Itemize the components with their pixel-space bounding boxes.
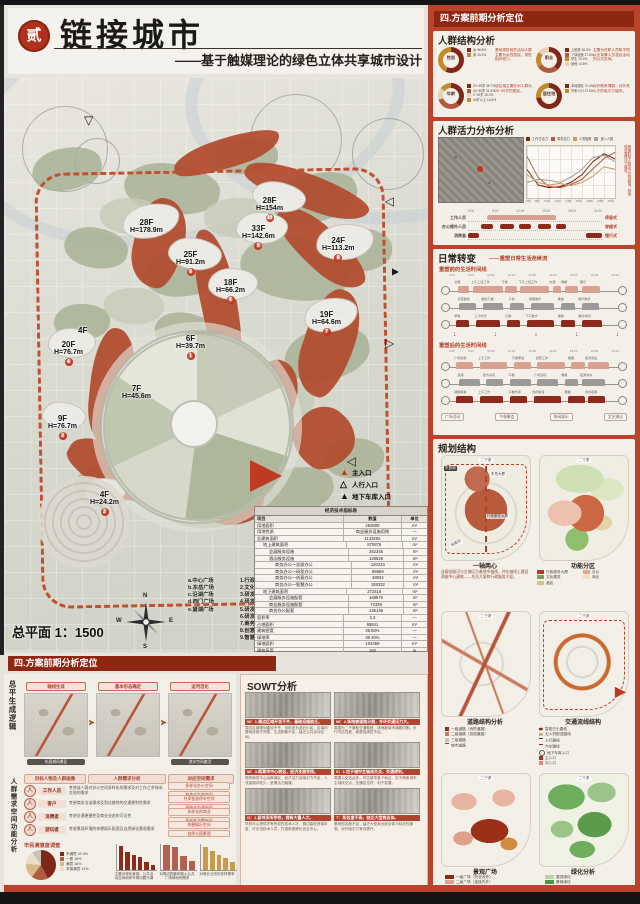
swot-item-body: 周边区域规划建设不齐，目前多为老旧小区，区域内基础设施不完善，生活配套不足，缺乏… bbox=[245, 726, 331, 739]
swot-item-body: 基地知名度不足，缺乏大型商业综合体与标志性景观，对外吸引力有待提升。 bbox=[334, 822, 420, 831]
bar bbox=[138, 857, 142, 870]
legend-swatch-icon bbox=[537, 581, 544, 585]
road-structure-diagram: 二干渠 bbox=[441, 611, 531, 717]
genesis-step-sublabel: 东昌湖风景区 bbox=[27, 759, 85, 765]
demand-persona-label: 消费者 bbox=[38, 813, 66, 821]
activity-segment bbox=[534, 396, 561, 403]
lake-label: 东昌湖 bbox=[444, 466, 457, 471]
donut-legend: 20~39岁 38.7%40~59岁 31.6%0~19岁 15.2%60岁以上… bbox=[467, 84, 493, 102]
swot-item-tag: W：2.场地被道路分割，外环交通压力大。 bbox=[334, 719, 420, 725]
donut-note: 该区域主要针对人群为20~55岁的居民。 bbox=[495, 84, 533, 93]
transform-arrows: ↓↓↓↓↓ bbox=[453, 331, 619, 338]
poster-header: 贰 链接城市 ——基于触媒理论的绿色立体共享城市设计 bbox=[8, 8, 424, 74]
demand-header: 人群需求分析 bbox=[88, 774, 166, 784]
road-line-icon bbox=[445, 732, 449, 736]
genesis-step-map bbox=[96, 693, 160, 757]
entrance-legend-item: 主入口 bbox=[340, 466, 426, 478]
compass-s: S bbox=[143, 644, 147, 650]
entrance-triangle-icon: △ bbox=[84, 116, 93, 128]
vitality-line-chart bbox=[526, 145, 616, 199]
compass-star-icon bbox=[124, 600, 168, 644]
building-number-badge: 1 bbox=[187, 352, 195, 360]
activity-segment bbox=[520, 286, 549, 293]
activity-segment bbox=[480, 362, 507, 369]
diagram-caption: 交通流线结构 bbox=[539, 717, 627, 726]
bottom-section-band: 四.方案前期分析定位 bbox=[8, 656, 276, 671]
table-row: 绿地率 39.30% — bbox=[255, 635, 427, 642]
legend-swatch-icon bbox=[565, 84, 569, 88]
genesis-steps: 轴线生成 东昌湖风景区 基本形态确定 运河活化 滨水空间激活 ➤ ➤ bbox=[24, 678, 236, 774]
donut-label: 性别 bbox=[438, 55, 464, 61]
legend-swatch-icon bbox=[583, 570, 590, 574]
plaza-name-item: e.望湖广场 bbox=[188, 607, 236, 614]
bar bbox=[210, 851, 215, 870]
site-photo bbox=[245, 788, 331, 814]
building-height-label: 6FH=39.7m1 bbox=[176, 334, 205, 360]
line-chart-svg bbox=[527, 146, 615, 198]
bottom-left-analysis-area: 总平生成逻辑 轴线生成 东昌湖风景区 基本形态确定 运河活化 滨水空间激活 ➤ … bbox=[4, 674, 236, 884]
activity-segment bbox=[565, 286, 579, 293]
zoning-legend: 行政服务大厦办公文化展览商业酒店 bbox=[537, 570, 629, 586]
road-line-icon bbox=[445, 743, 449, 748]
building-height-label: 24FH=113.2m8 bbox=[322, 236, 355, 262]
activity-segment bbox=[588, 396, 605, 403]
timeline-strip: 广场晨练上午工作午餐聚会创意工作晚餐夜间演出 bbox=[441, 355, 627, 371]
entrance-triangle-icon bbox=[340, 467, 352, 477]
swot-item: T：知名度不高，缺乏大型商业体。 基地知名度不足，缺乏大型商业综合体与标志性景观… bbox=[334, 788, 420, 831]
building-number-badge: 9 bbox=[254, 242, 262, 250]
person-icon bbox=[24, 824, 36, 836]
pie-legend: 不满意 42.3%一般 18%满意 16%非常满意 14% bbox=[60, 852, 112, 872]
traffic-dashed-boundary bbox=[543, 620, 625, 710]
activity-segment bbox=[561, 320, 575, 327]
activity-segment bbox=[459, 379, 479, 386]
legend-swatch-icon bbox=[445, 880, 454, 884]
activity-segment bbox=[568, 396, 585, 403]
donut-label: 居住地 bbox=[536, 91, 562, 97]
table-row: 地上建筑面积 870876 m² bbox=[255, 542, 427, 549]
compass-e: E bbox=[169, 618, 173, 624]
table-row: 绿地面积 104369 m² bbox=[255, 641, 427, 648]
bar-caption: 对商业业态的多样需求 bbox=[198, 872, 236, 876]
arrow-right-icon: ➤ bbox=[88, 718, 95, 727]
bar-caption: 对周边配套和核心公共广场绿地有需求 bbox=[158, 872, 196, 880]
right-analysis-panel: 四.方案前期分析定位 人群结构分析 性别 女 56.9%男 43.1% 基地现阶… bbox=[428, 5, 640, 892]
plaza-structure-diagram: 二干渠 bbox=[441, 773, 531, 867]
entrance-legend: 主入口人行入口地下车库入口 bbox=[340, 466, 426, 502]
river-label: 二干渠 bbox=[577, 458, 592, 463]
site-photo bbox=[334, 788, 420, 814]
section-number-badge: 贰 bbox=[18, 20, 50, 52]
traffic-flow-diagram: 二干渠 bbox=[539, 611, 629, 717]
vitality-card: 人群活力分布分析 工作日活力周末活力人流指数进入人数 6时8时10时12时14时… bbox=[433, 121, 635, 245]
card-subtitle: ——重塑日常生活连续流 bbox=[489, 254, 547, 262]
swot-item-body: 周围公交站点多，可达城市各个地点，位于两条城市主轴线交点，交通区位好，利于发展。 bbox=[334, 776, 420, 785]
time-ticks: 6:008:0010:0012:0014:0016:0018:0020:0022… bbox=[449, 349, 619, 353]
activity-segment bbox=[514, 362, 531, 369]
activity-segment bbox=[480, 396, 504, 403]
title-rule bbox=[54, 48, 422, 49]
table-row: 会展服务设施配套 168576 m² bbox=[255, 595, 427, 602]
demand-persona-label: 游玩者 bbox=[38, 826, 66, 834]
donut-legend: 上班族 38.2%个体经营 27.6%学生 19.4%其他 14.8% bbox=[565, 48, 591, 66]
swot-item-tag: T：知名度不高，缺乏大型商业体。 bbox=[334, 815, 420, 821]
activity-segment bbox=[588, 362, 608, 369]
satellite-map bbox=[438, 137, 524, 203]
table-row: 会展服务设施 262345 m² bbox=[255, 549, 427, 556]
swot-item-tag: O：1.紧邻多所学校，拥有大量人才。 bbox=[245, 815, 331, 821]
entrance-triangle-icon: △ bbox=[383, 197, 395, 206]
timeline-endpoint bbox=[618, 286, 627, 295]
activity-segment bbox=[476, 320, 500, 327]
demand-rows: 工作人员 考虑该人群对办公空间多样化的需求及对工作之余休闲交流的需求 多样化办公… bbox=[24, 784, 230, 836]
timeline-bar bbox=[519, 224, 531, 229]
genesis-step-tag: 基本形态确定 bbox=[98, 682, 158, 691]
table-row: 地下建筑面积 272416 m² bbox=[255, 589, 427, 596]
legend-swatch-icon bbox=[537, 575, 544, 579]
genesis-step-sublabel: 滨水空间激活 bbox=[171, 759, 229, 765]
swot-item-tag: S：1.位于城市主轴线交点，交通便利。 bbox=[334, 769, 420, 775]
table-row: 商务办公—创意办公 48834 m² bbox=[255, 575, 427, 582]
legend-swatch-icon bbox=[60, 857, 64, 861]
table-row: 酒店服务设施 128526 m² bbox=[255, 556, 427, 563]
swot-item-tag: W：3.距离市中心较远，经济发展受限。 bbox=[245, 769, 331, 775]
legend-swatch-icon bbox=[467, 53, 471, 57]
donut-note: 对外联系薄弱，对外来人才的吸引力缺失。 bbox=[593, 84, 631, 93]
building-height-label: 28FH=178.9m bbox=[130, 218, 163, 235]
legend-swatch-icon bbox=[467, 48, 471, 52]
legend-swatch-icon bbox=[545, 875, 554, 879]
activity-segment bbox=[582, 320, 602, 327]
satisfaction-pie-chart bbox=[26, 850, 56, 880]
traffic-symbol-icon bbox=[539, 738, 543, 743]
donut-cell-occupation: 职业 上班族 38.2%个体经营 27.6%学生 19.4%其他 14.8% 主… bbox=[536, 45, 632, 78]
timeline-row-workers: 工作人员 停留式 bbox=[438, 213, 630, 222]
daily-transformation-card: 日常转变 ——重塑日常生活连续流 重塑前的生活时间线 6:008:0010:00… bbox=[433, 249, 635, 435]
demand-header: 目标人物及人群画像 bbox=[24, 774, 86, 784]
bar bbox=[172, 847, 179, 870]
tower-label: 东岳大厦 bbox=[490, 472, 506, 477]
table-row: 商务办公—研发办公 96869 m² bbox=[255, 569, 427, 576]
building-height-label: 7FH=45.6m bbox=[122, 384, 151, 401]
donut-note: 主要为在职人员和不同从业背景人员混合活动的公共空间。 bbox=[593, 48, 631, 62]
table-row: 建筑密度 25.80% — bbox=[255, 628, 427, 635]
building-number-badge: 8 bbox=[334, 254, 342, 262]
river-label: 二干渠 bbox=[479, 776, 494, 781]
activity-segment bbox=[507, 320, 521, 327]
central-plaza-core bbox=[170, 400, 218, 448]
timeline-bar bbox=[487, 215, 557, 220]
bar bbox=[163, 845, 170, 870]
timeline-strip: 交通上午上班工作午餐下午上班工作交通晚餐娱乐 bbox=[441, 279, 627, 295]
genesis-step: 运河活化 滨水空间激活 bbox=[168, 682, 232, 768]
building-height-label: 19FH=64.6m7 bbox=[312, 310, 341, 336]
planning-structure-card: 规划结构 二干渠 东昌湖 东岳大厦 行政服务大厦 徒骇河 二干渠 一轴两心 功能… bbox=[433, 439, 635, 887]
main-entrance-arrow bbox=[615, 687, 626, 698]
legend-swatch-icon bbox=[565, 48, 569, 52]
swot-item: W：2.场地被道路分割，外环交通压力大。 周围为二干渠和交通枢纽，场地被城市道路… bbox=[334, 692, 420, 739]
activity-segment bbox=[483, 303, 503, 310]
building-height-label: 9FH=76.7m3 bbox=[48, 414, 77, 440]
table-row: 商务办公—总部办公 120233 m² bbox=[255, 562, 427, 569]
building-height-label: 20FH=76.7m4 bbox=[54, 340, 83, 366]
table-row: 用地性质 商业服务设施用地 — bbox=[255, 529, 427, 536]
demand-persona-label: 工作人员 bbox=[38, 787, 66, 795]
activity-segment bbox=[582, 379, 606, 386]
swot-item: W：3.距离市中心较远，经济发展受限。 现有商务中心远离城区，经济活力及吸引力不… bbox=[245, 742, 331, 785]
demand-need-text: 考虑交通便捷性及商业业态的可达性 bbox=[69, 814, 165, 819]
swot-items: W：1.周边区域开发不齐，基础设施缺乏。 周边区域规划建设不齐，目前多为老旧小区… bbox=[245, 692, 423, 831]
bar bbox=[230, 862, 235, 870]
arrow-right-icon: ➤ bbox=[160, 718, 167, 727]
genesis-step: 基本形态确定 bbox=[96, 682, 160, 768]
admin-tower-label: 行政服务大厦 bbox=[486, 514, 509, 519]
pie-legend-item: 非常满意 14% bbox=[60, 867, 112, 872]
activity-segment bbox=[531, 303, 555, 310]
timeline-row-consumers: 消费者 慢行式 bbox=[438, 231, 630, 240]
building-height-label: 18FH=66.2m6 bbox=[216, 278, 245, 304]
poster-board: 贰 链接城市 ——基于触媒理论的绿色立体共享城市设计 △ △ △ △ ▲ 28F… bbox=[0, 0, 640, 904]
table-row: 占地面积 65841 m² bbox=[255, 622, 427, 629]
bottom-frame-bar bbox=[0, 892, 640, 904]
person-icon bbox=[24, 798, 36, 810]
genesis-step-tag: 轴线生成 bbox=[26, 682, 86, 691]
demand-vertical-title: 人群需求空间功能分析 bbox=[7, 778, 17, 853]
diagram-caption: 道路结构分析 bbox=[441, 717, 529, 726]
demand-persona-label: 客户 bbox=[38, 800, 66, 808]
swot-item-body: 现有商务中心远离城区，经济活力及吸引力不足，人流量相对较少，亟需活力触媒。 bbox=[245, 776, 331, 785]
legend-swatch-icon bbox=[565, 53, 569, 57]
timeline-strip: 早餐上午时光午餐下午散步晚餐晚间休闲 bbox=[441, 313, 627, 329]
activity-segment bbox=[456, 362, 473, 369]
legend-swatch-icon bbox=[545, 880, 554, 884]
building-number-badge: 4 bbox=[65, 358, 73, 366]
activity-segment bbox=[571, 362, 585, 369]
site-photo bbox=[245, 742, 331, 768]
table-title: 经济技术指标表 bbox=[255, 507, 427, 516]
legend-swatch-icon bbox=[60, 862, 64, 866]
person-icon bbox=[24, 785, 36, 797]
swot-panel: SOWT分析 W：1.周边区域开发不齐，基础设施缺乏。 周边区域规划建设不齐，目… bbox=[240, 674, 428, 886]
entrance-triangle-icon bbox=[340, 491, 352, 501]
demand-row: 游玩者 考虑景观环境的休憩娱乐氛围及自然绿化景观需求 休憩娱乐空间自然公园景观 bbox=[24, 823, 230, 836]
river-label: 二干渠 bbox=[479, 614, 494, 619]
donut-label: 年龄 bbox=[438, 91, 464, 97]
road-line-icon bbox=[445, 727, 449, 731]
activity-segment bbox=[505, 286, 517, 293]
bar bbox=[144, 862, 148, 870]
site-photo bbox=[245, 692, 331, 718]
donut-cell-gender: 性别 女 56.9%男 43.1% 基地现阶段的活动人群主要为女性居民，男性相对… bbox=[438, 45, 534, 78]
time-ticks: 6:008:0010:0012:0014:0016:0018:0020:0022… bbox=[449, 273, 619, 277]
poster-subtitle: ——基于触媒理论的绿色立体共享城市设计 bbox=[8, 50, 422, 69]
building-number-badge: 6 bbox=[227, 296, 235, 304]
traffic-legend: 智能巴士路线无人机配送路线人行路线汽车路线地下车库入口主入口次入口 bbox=[539, 727, 633, 767]
building-number-badge: 2 bbox=[101, 508, 109, 516]
plaza-name-list: a.中心广场b.东岳广场c.沿湖广场d.西门广场e.望湖广场 bbox=[188, 578, 236, 614]
donut-label: 职业 bbox=[536, 55, 562, 61]
compass-rose: N E S W bbox=[124, 600, 168, 644]
demand-need-text: 考虑该人群对办公空间多样化的需求及对工作之余休闲交流的需求 bbox=[69, 786, 165, 795]
plaza-name-item: d.西门广场 bbox=[188, 599, 236, 606]
legend-swatch-icon bbox=[565, 57, 569, 61]
activity-chips: 广场活动午餐聚会休闲娱乐文艺演出 bbox=[441, 413, 627, 421]
timeline-bar bbox=[500, 224, 513, 229]
diagram-caption: 一轴两心 bbox=[441, 561, 529, 570]
legend-swatch-icon bbox=[573, 137, 577, 141]
activity-segment bbox=[582, 303, 599, 310]
activity-segment bbox=[456, 396, 473, 403]
activity-segment bbox=[473, 286, 504, 293]
site-photo bbox=[334, 692, 420, 718]
compass-w: W bbox=[116, 618, 122, 624]
site-marker bbox=[477, 166, 483, 172]
master-plan: △ △ △ △ ▲ 28FH=154m1028FH=178.9m33FH=142… bbox=[4, 78, 428, 652]
legend-swatch-icon bbox=[467, 93, 471, 97]
building-height-label: 25FH=91.2m5 bbox=[176, 250, 205, 276]
legend-swatch-icon bbox=[467, 98, 471, 102]
demand-space-chips: 休憩娱乐空间自然公园景观 bbox=[168, 821, 230, 838]
building-number-badge: 5 bbox=[187, 268, 195, 276]
swot-item: W：1.周边区域开发不齐，基础设施缺乏。 周边区域规划建设不齐，目前多为老旧小区… bbox=[245, 692, 331, 739]
complaint-bar-chart bbox=[116, 844, 157, 871]
timeline-after-title: 重塑后的生活时间线 bbox=[439, 341, 487, 349]
table-header-row: 项目 数值 单位 bbox=[255, 516, 427, 523]
activity-segment bbox=[553, 286, 562, 293]
bar bbox=[125, 852, 129, 870]
behavior-timeline: 6:009:0012:0015:0018:0021:00 工作人员 停留式 办公… bbox=[438, 209, 630, 240]
bottom-red-frame bbox=[4, 885, 636, 892]
crowd-structure-card: 人群结构分析 性别 女 56.9%男 43.1% 基地现阶段的活动人群主要为女性… bbox=[433, 31, 635, 117]
legend-swatch-icon bbox=[537, 570, 544, 574]
table-row: 用地面积 262800 m² bbox=[255, 523, 427, 530]
right-panel-band: 四.方案前期分析定位 bbox=[434, 11, 634, 27]
swot-title: SOWT分析 bbox=[247, 678, 297, 693]
entrance-legend-item: 人行入口 bbox=[340, 478, 426, 490]
bar bbox=[119, 846, 123, 870]
line-chart-legend: 工作日活力周末活力人流指数进入人数 bbox=[526, 136, 626, 141]
activity-segment bbox=[486, 379, 503, 386]
building-height-label: 33FH=142.6m9 bbox=[242, 224, 275, 250]
demand-need-text: 考虑商务洽谈需求及到达基地的交通便利性需求 bbox=[69, 801, 165, 806]
activity-segment bbox=[510, 379, 530, 386]
legend-swatch-icon bbox=[594, 137, 598, 141]
bar bbox=[132, 855, 136, 870]
bar bbox=[223, 858, 228, 870]
axis-diagram: 二干渠 东昌湖 东岳大厦 行政服务大厦 徒骇河 bbox=[441, 455, 531, 561]
swot-item: S：1.位于城市主轴线交点，交通便利。 周围公交站点多，可达城市各个地点，位于两… bbox=[334, 742, 420, 785]
donut-note: 基地现阶段的活动人群主要为女性居民，男性相对较少。 bbox=[495, 48, 533, 62]
roads-legend: 一级道路（消防道路）二级道路（游园道路）三级道路城市道路 bbox=[445, 727, 537, 749]
traffic-symbol-icon bbox=[539, 761, 543, 765]
legend-swatch-icon bbox=[467, 89, 471, 93]
table-row: 商务办公—智慧办公 158332 m² bbox=[255, 582, 427, 589]
card-title: 人群活力分布分析 bbox=[438, 123, 514, 137]
swot-item-tag: W：1.周边区域开发不齐，基础设施缺乏。 bbox=[245, 719, 331, 725]
genesis-step-map bbox=[24, 693, 88, 757]
person-icon bbox=[24, 811, 36, 823]
chart-annotation: 傍晚时段人群活力达到峰值，基地现状整体活力偏低。 bbox=[617, 145, 630, 197]
timeline-bar bbox=[538, 224, 551, 229]
donut-legend: 本地居民 72.4%外来人口 27.6% bbox=[565, 84, 591, 93]
activity-segment bbox=[458, 286, 470, 293]
economic-indicator-table: 经济技术指标表 项目 数值 单位 用地面积 262800 m² 用地性质 商业服… bbox=[254, 506, 428, 652]
activity-segment bbox=[537, 379, 557, 386]
building-height-label: 28FH=154m10 bbox=[256, 196, 283, 222]
traffic-symbol-icon bbox=[539, 727, 543, 731]
line-chart-x-ticks: 6时8时10时12时14时16时18时20时22时 bbox=[526, 199, 614, 203]
building-height-label: 4FH=24.2m2 bbox=[90, 490, 119, 516]
activity-segment bbox=[459, 303, 476, 310]
genesis-vertical-title: 总平生成逻辑 bbox=[7, 680, 18, 731]
table-row: 建筑高度 180 m bbox=[255, 648, 427, 652]
need-bar-chart bbox=[160, 844, 197, 871]
traffic-symbol-icon bbox=[539, 756, 543, 760]
activity-segment bbox=[510, 303, 524, 310]
table-body: 用地面积 262800 m² 用地性质 商业服务设施用地 — 总建筑面积 114… bbox=[255, 523, 427, 652]
timeline-strip: 通勤换乘上午工作午餐外卖休闲健身晚餐滨水夜跑 bbox=[441, 389, 627, 405]
timeline-strip: 晨练集市采买午餐广场活动晚餐夜游滨水 bbox=[441, 372, 627, 388]
timeline-bar bbox=[556, 224, 565, 229]
greening-diagram: 二干渠 bbox=[539, 773, 629, 867]
building-number-badge: 3 bbox=[59, 432, 67, 440]
compass-n: N bbox=[143, 593, 147, 599]
timeline-strip: 买菜做饭做饭午餐午休闲聊散步晚餐娱乐散步 bbox=[441, 296, 627, 312]
diagram-caption: 功能分区 bbox=[539, 561, 627, 570]
bar-caption: 主要对绿化景观、公共活动空间和停车等问题不满 bbox=[114, 872, 154, 880]
genesis-step: 轴线生成 东昌湖风景区 bbox=[24, 682, 88, 768]
activity-segment bbox=[537, 362, 564, 369]
timeline-bar bbox=[586, 233, 602, 238]
donut-cell-age: 年龄 20~39岁 38.7%40~59岁 31.6%0~19岁 15.2%60… bbox=[438, 81, 534, 114]
legend-swatch-icon bbox=[60, 852, 64, 856]
table-row: 商务办公配套 135146 m² bbox=[255, 608, 427, 615]
donut-legend: 女 56.9%男 43.1% bbox=[467, 48, 493, 57]
main-entrance-arrow bbox=[250, 460, 282, 492]
demand-need-text: 考虑景观环境的休憩娱乐氛围及自然绿化景观需求 bbox=[69, 827, 165, 832]
bar bbox=[180, 856, 187, 870]
building-number-badge: 7 bbox=[323, 328, 331, 336]
swot-item: O：1.紧邻多所学校，拥有大量人才。 学校可以提供学有所成的技术人才，周边高校资… bbox=[245, 788, 331, 831]
timeline-before-title: 重塑前的生活时间线 bbox=[439, 265, 487, 273]
genesis-step-map bbox=[168, 693, 232, 757]
river-label: 二干渠 bbox=[479, 458, 494, 463]
legend-swatch-icon bbox=[565, 89, 569, 93]
swot-item-body: 学校可以提供学有所成的技术人才，周边高校资源丰富，可引进技术人员，打造新型孵化创… bbox=[245, 822, 331, 831]
traffic-symbol-icon bbox=[539, 750, 545, 756]
legend-swatch-icon bbox=[583, 575, 590, 579]
activity-segment bbox=[510, 396, 527, 403]
garage-entrance-triangle-icon: ▲ bbox=[390, 266, 402, 278]
legend-swatch-icon bbox=[445, 875, 454, 879]
site-photo bbox=[334, 742, 420, 768]
activity-segment bbox=[527, 320, 554, 327]
activity-segment bbox=[561, 303, 575, 310]
genesis-step-tag: 运河活化 bbox=[170, 682, 230, 691]
bar bbox=[203, 847, 208, 870]
bar bbox=[151, 865, 155, 870]
activity-segment bbox=[456, 320, 470, 327]
donut-cell-residence: 居住地 本地居民 72.4%外来人口 27.6% 对外联系薄弱，对外来人才的吸引… bbox=[536, 81, 632, 114]
legend-swatch-icon bbox=[526, 137, 530, 141]
legend-swatch-icon bbox=[60, 867, 64, 871]
river-label: 二干渠 bbox=[577, 614, 592, 619]
river-label: 二干渠 bbox=[577, 776, 592, 781]
building-number-badge: 10 bbox=[266, 214, 274, 222]
timeline-row-visitors: 办公楼外人员 穿越式 bbox=[438, 222, 630, 231]
card-title: 日常转变 bbox=[438, 251, 476, 265]
bar bbox=[217, 855, 222, 870]
